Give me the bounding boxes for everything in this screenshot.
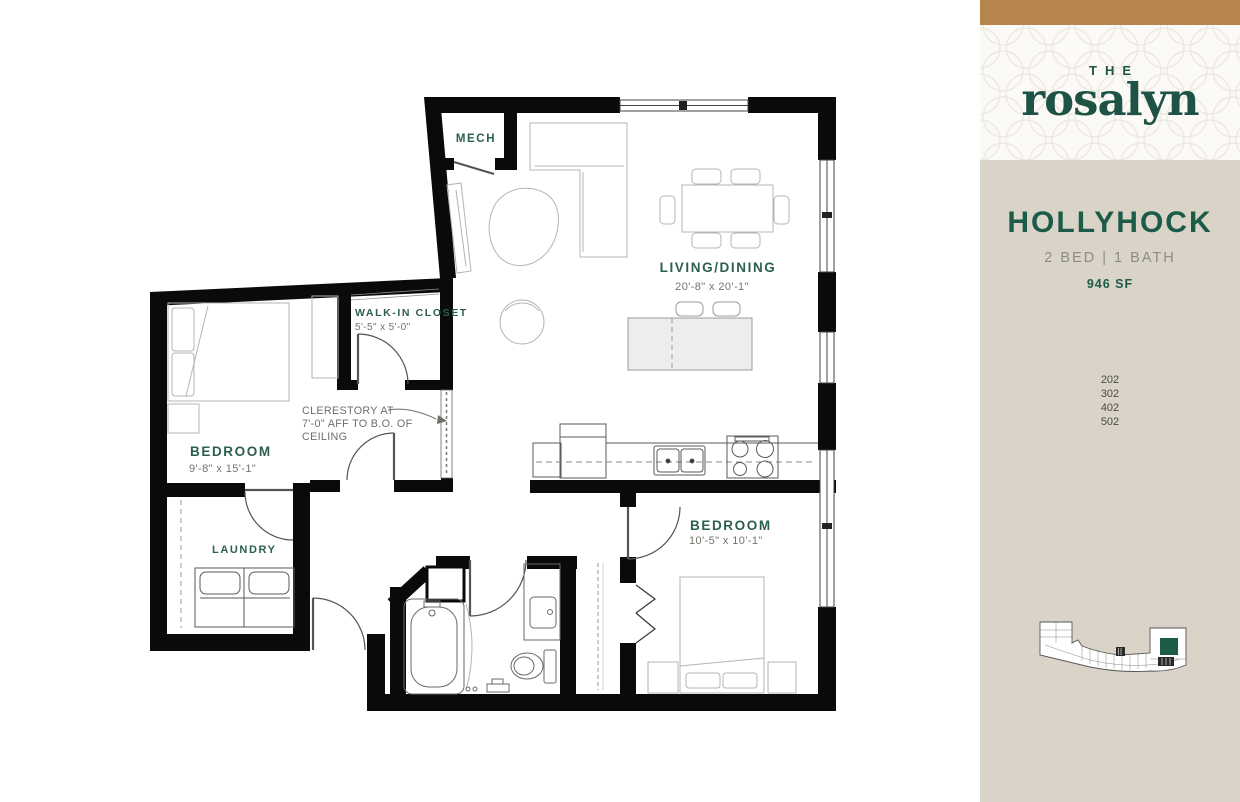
unit-number: 202 <box>980 373 1240 387</box>
accent-bar <box>980 0 1240 25</box>
logo-wordmark: rosalyn <box>1021 79 1198 122</box>
plan-specs: 2 BED | 1 BATH <box>980 250 1240 266</box>
kitchen <box>533 424 818 478</box>
room-label-mech: MECH <box>456 133 496 145</box>
bathtub <box>404 599 464 694</box>
room-label-walk-in-closet: WALK-IN CLOSET <box>355 307 468 319</box>
unit-list: 202 302 402 502 <box>980 373 1240 429</box>
clerestory-note-line-3: CEILING <box>302 431 347 443</box>
floorplan-sheet: MECH LIVING/DINING 20'-8" x 20'-1" WALK-… <box>0 0 1240 802</box>
plan-name: HOLLYHOCK <box>980 206 1240 240</box>
room-label-laundry: LAUNDRY <box>212 544 277 556</box>
unit-number: 502 <box>980 415 1240 429</box>
room-dims-walk-in-closet: 5'-5" x 5'-0" <box>355 322 411 333</box>
sidebar-body: HOLLYHOCK 2 BED | 1 BATH 946 SF 202 302 … <box>980 160 1240 802</box>
toilet <box>544 650 556 683</box>
coffee-table <box>489 188 558 265</box>
highlighted-unit <box>1160 638 1178 655</box>
sofa <box>530 123 627 257</box>
plan-area: 946 SF <box>980 277 1240 291</box>
room-dims-living-dining: 20'-8" x 20'-1" <box>675 281 749 293</box>
clerestory-note-line-2: 7'-0" AFF TO B.O. OF <box>302 418 413 430</box>
sidebar: THE rosalyn HOLLYHOCK 2 BED | 1 BATH 946… <box>980 0 1240 802</box>
bed-2 <box>680 577 764 693</box>
hall-niche <box>427 567 464 601</box>
dining-table <box>682 185 773 232</box>
logo-block: THE rosalyn <box>980 25 1240 160</box>
bed-1 <box>168 303 289 401</box>
walls <box>150 97 836 711</box>
vanity <box>524 564 560 640</box>
floorplan-drawing: MECH LIVING/DINING 20'-8" x 20'-1" WALK-… <box>0 0 980 802</box>
building-key-plan <box>1030 615 1190 690</box>
room-dims-bedroom-2: 10'-5" x 10'-1" <box>689 535 763 547</box>
room-label-bedroom-2: BEDROOM <box>690 518 772 533</box>
laundry-appliances <box>181 500 294 628</box>
clerestory-wall <box>441 390 452 478</box>
fridge <box>560 424 606 478</box>
wardrobe <box>312 296 338 378</box>
room-dims-bedroom-1: 9'-8" x 15'-1" <box>189 463 256 475</box>
clerestory-note-line-1: CLERESTORY AT <box>302 405 394 417</box>
furniture <box>168 123 796 693</box>
room-label-living-dining: LIVING/DINING <box>660 260 777 275</box>
armchair <box>500 300 544 344</box>
room-label-bedroom-1: BEDROOM <box>190 444 272 459</box>
kitchen-island <box>628 302 752 370</box>
unit-number: 402 <box>980 401 1240 415</box>
unit-number: 302 <box>980 387 1240 401</box>
